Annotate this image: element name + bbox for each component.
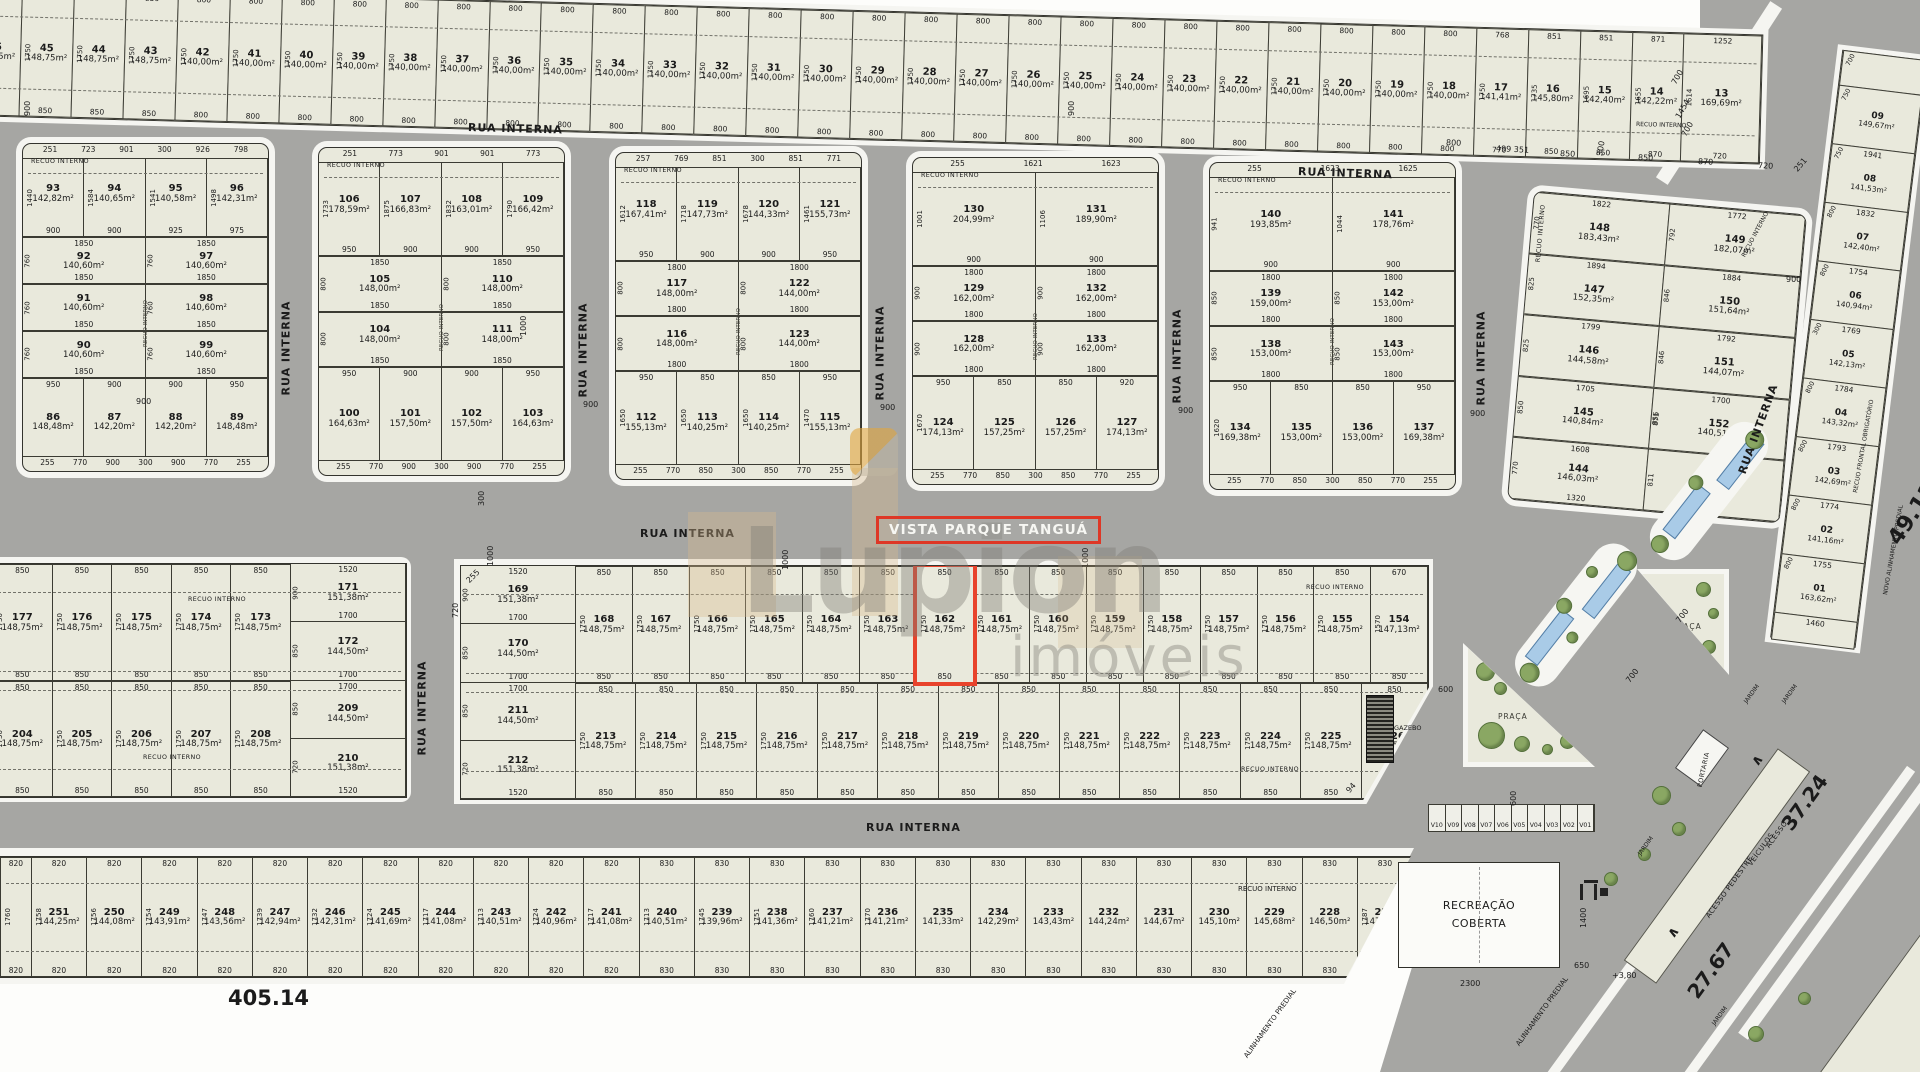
parking-stall-V05[interactable]: V05 [1512,805,1529,831]
lot-109[interactable]: 109166,42m²9501790 [502,162,564,256]
lot-area: 141,21m² [812,918,853,927]
lot-20[interactable]: 80020140,00m²8001750 [1317,24,1373,153]
dim-label: 720 [452,603,460,618]
lot-number: 95 [169,183,183,195]
dim-label: 1400 [1580,908,1588,928]
lot-229[interactable]: 830229145,68m²830 [1246,857,1302,977]
lot-side-dim: 760 [24,348,32,361]
lot-129[interactable]: 1800129162,00m²1800900 [912,266,1036,321]
lot-side-dim: 1461 [803,205,811,223]
dimension-row: 255770850300850770255 [913,470,1158,484]
lot-127[interactable]: 920127174,13m² [1096,376,1158,470]
lot-166[interactable]: 850166148,75m²8501750 [689,566,747,683]
lot-141[interactable]: 141178,76m²9001044 [1332,177,1456,271]
lot-number: 157 [1218,614,1239,626]
lot-area: 155,13m² [625,424,666,433]
lot-212[interactable]: 212151,38m²1520720 [460,740,576,799]
lot-120[interactable]: 120144,33m²9001678 [738,167,800,261]
lot-side-dim: 1750 [1218,76,1226,94]
lot-area: 148,75m² [754,626,795,635]
lot-top-dim: 800 [560,4,575,15]
lot-238[interactable]: 830238141,36m²8301751 [749,857,805,977]
lot-122[interactable]: 1800122144,00m²1800800 [738,261,862,316]
lot-217[interactable]: 850217148,75m²8501750 [817,683,878,800]
lot-area: 153,00m² [1342,434,1383,443]
lot-side-dim: 1670 [916,414,924,432]
lot-96[interactable]: 96142,31m²9751498 [206,158,268,237]
lot-90[interactable]: 90140,60m²1850760 [22,331,146,378]
lot-32[interactable]: 80032140,00m²8001750 [694,7,750,136]
lot-14[interactable]: 87114142,22m²8701655 [1628,32,1684,161]
lot-label: 137169,38m² [1403,393,1444,472]
lot-area: 148,75m² [887,742,928,751]
lot-230[interactable]: 830230145,10m²830 [1191,857,1247,977]
lot-side-dim: 850 [1333,292,1341,305]
lot-area: 145,68m² [1254,918,1295,927]
lot-bottom-dim: 800 [401,115,416,126]
lot-bottom-dim: 1800 [1087,309,1106,320]
lot-128[interactable]: 128162,00m²1800900 [912,321,1036,376]
recuo-interno-label: RECUO INTERNO [624,167,682,174]
lot-248[interactable]: 820248143,56m²8201747 [197,857,253,977]
lot-area: 148,75m² [1094,626,1135,635]
lot-area: 140,25m² [748,424,789,433]
lot-23[interactable]: 80023140,00m²8001750 [1161,19,1217,148]
lot-105[interactable]: 1850105148,00m²1850800 [318,256,442,311]
lot-123[interactable]: 123144,00m²1800800 [738,316,862,371]
lot-bottom-dim: 1800 [667,359,686,370]
lot-205[interactable]: 850205148,75m²8501750 [52,681,113,798]
lot-bottom-dim: 1800 [1384,369,1403,380]
lot-246[interactable]: 820246142,31m²8201732 [307,857,363,977]
lot-118[interactable]: 118167,41m²9501612 [615,167,677,261]
lot-bottom-dim: 850 [824,671,838,682]
lot-124[interactable]: 950124174,13m²1670 [912,376,974,470]
lot-139[interactable]: 1800139159,00m²1800850 [1209,271,1333,326]
lot-bottom-dim: 830 [936,965,950,976]
parking-stall-V09[interactable]: V09 [1446,805,1463,831]
lot-top-dim: 850 [134,682,148,693]
lot-34[interactable]: 80034140,00m²8001750 [590,4,646,133]
lot-245[interactable]: 820245141,69m²8201724 [362,857,418,977]
lot-side-dim: 1750 [1166,74,1174,92]
lot-213[interactable]: 850213148,75m²8501750 [575,683,636,800]
lot-102[interactable]: 900102157,50m² [441,367,503,461]
lot-223[interactable]: 850223148,75m²8501750 [1179,683,1240,800]
lot-138[interactable]: 138153,00m²1800850 [1209,326,1333,381]
lot-243[interactable]: 820243140,51m²8201713 [473,857,529,977]
lot-215[interactable]: 850215148,75m²8501750 [696,683,757,800]
lot-38[interactable]: 80038140,00m²8001750 [382,0,438,128]
lot-142[interactable]: 1800142153,00m²1800850 [1332,271,1456,326]
lot-label: 124174,13m² [922,388,963,467]
lot-top-dim: 820 [439,858,453,869]
lot-231[interactable]: 830231144,67m²830 [1136,857,1192,977]
lot-19[interactable]: 80019140,00m²8001750 [1369,25,1425,154]
lot-top-dim: 830 [936,858,950,869]
lot-126[interactable]: 850126157,25m² [1035,376,1097,470]
lot-113[interactable]: 850113140,25m²1650 [676,371,738,465]
lot-136[interactable]: 850136153,00m² [1332,381,1394,475]
dim-label: 900 [106,458,120,470]
lot-251[interactable]: 820251144,25m²8201758 [31,857,87,977]
lot-top-dim: 850 [134,565,148,576]
lot-area: 148,75m² [766,742,807,751]
lot-143[interactable]: 143153,00m²1800850 [1332,326,1456,381]
lot-112[interactable]: 950112155,13m²1650 [615,371,677,465]
lot-208[interactable]: 850208148,75m²8501750 [230,681,291,798]
lot-area: 144,07m² [1702,367,1744,379]
lot-number: 117 [666,278,687,290]
lot-140[interactable]: 140193,85m²900941 [1209,177,1333,271]
parking-stall-V04[interactable]: V04 [1528,805,1545,831]
tree-icon [1494,682,1507,695]
lot-36[interactable]: 80036140,00m²8001750 [486,1,542,130]
lot-area: 140,00m² [857,76,899,86]
lot-157[interactable]: 850157148,75m²8501750 [1200,566,1258,683]
lot-132[interactable]: 1800132162,00m²1800900 [1035,266,1159,321]
street-name-label: RUA INTERNA [1298,166,1393,180]
lot-173[interactable]: 850173148,75m²8501750 [230,564,291,681]
lot-label [1881,58,1885,90]
lot-bottom-dim: 820 [107,965,121,976]
lot-side-dim: 1584 [87,189,95,207]
lot-top-dim: 850 [1051,567,1065,578]
lot-222[interactable]: 850222148,75m²8501750 [1119,683,1180,800]
lot-97[interactable]: 185097140,60m²1850760 [145,237,269,284]
lot-31[interactable]: 80031140,00m²8001750 [746,8,802,137]
lot-area: 140,51m² [646,918,687,927]
mid-block-top-half: 850177148,75m²8501750850176148,75m²85017… [0,564,406,681]
lot-bottom-dim: 850 [1022,787,1036,798]
dim-label: 850 [1560,150,1576,159]
lot-bottom-dim: 800 [1232,137,1247,148]
block-top-row: 93142,82m²900144094140,65m²900158495140,… [23,158,268,237]
lot-label: 222148,75m² [1129,695,1170,788]
lot-88[interactable]: 90088142,20m² [145,378,207,457]
lot-237[interactable]: 830237141,21m²8301760 [804,857,860,977]
lot-131[interactable]: 131189,90m²9001106 [1035,172,1159,266]
parking-stall-V06[interactable]: V06 [1495,805,1512,831]
lot-163[interactable]: 850163148,75m²8501750 [859,566,917,683]
lot-area: 144,33m² [748,211,789,220]
parking-stall-V07[interactable]: V07 [1479,805,1496,831]
lot-number: 103 [522,408,543,420]
lot-92[interactable]: 185092140,60m²1850760 [22,237,146,284]
lot-206[interactable]: 850206148,75m²8501750 [111,681,172,798]
dim-label: 255 [40,458,54,470]
lot-108[interactable]: 108163,01m²9001832 [441,162,503,256]
parking-stall-V08[interactable]: V08 [1462,805,1479,831]
lot-18[interactable]: 80018140,00m²8001750 [1421,26,1477,155]
tree-icon [1604,872,1618,886]
lot-44[interactable]: 85044148,75m²8501750 [70,0,126,119]
lot-107[interactable]: 107166,83m²9001875 [379,162,441,256]
lot-top-dim: 800 [612,5,627,16]
lot-number: 168 [593,614,614,626]
lot-106[interactable]: 106178,59m²9501733 [318,162,380,256]
lot-17[interactable]: 76817141,41m²7701750 [1473,28,1529,157]
lot-159[interactable]: 850159148,75m²8501750 [1086,566,1144,683]
lot-174[interactable]: 850174148,75m²8501750 [171,564,232,681]
lot-area: 142,82m² [32,195,73,204]
lot-28[interactable]: 80028140,00m²8001750 [901,12,957,141]
lot-177[interactable]: 850177148,75m²8501750 [0,564,53,681]
lot-bottom-dim: 830 [715,965,729,976]
lot-26[interactable]: 80026140,00m²8001750 [1005,15,1061,144]
lot-number: 119 [697,199,718,211]
lot-160[interactable]: 850160148,75m²8501750 [1029,566,1087,683]
lot-119[interactable]: 119147,73m²9001718 [676,167,738,261]
lot-115[interactable]: 950115155,13m²1470 [799,371,861,465]
lot-87[interactable]: 90087142,20m² [83,378,145,457]
lot-236[interactable]: 830236141,21m²8301770 [860,857,916,977]
lot-133[interactable]: 133162,00m²1800900 [1035,321,1159,376]
lot-west-dim: 800 [1782,556,1795,571]
lot-label: 206148,75m² [121,693,162,786]
lot-area: 204,99m² [953,216,994,225]
lot-240[interactable]: 830240140,51m²8301713 [639,857,695,977]
lot-side-dim: 1750 [1011,70,1019,88]
lot-33[interactable]: 80033140,00m²8001750 [642,5,698,134]
lot-area: 153,00m² [1373,300,1414,309]
lot-134[interactable]: 950134169,38m²1620 [1209,381,1271,475]
lot-130[interactable]: 130204,99m²9001001 [912,172,1036,266]
lot-side-dim: 1612 [619,205,627,223]
lot-176[interactable]: 850176148,75m²8501750 [52,564,113,681]
lot-94[interactable]: 94140,65m²9001584 [83,158,145,237]
tree-icon [1696,582,1711,597]
lot-top-dim: 820 [328,858,342,869]
lot-242[interactable]: 820242140,96m²8201724 [528,857,584,977]
lot-101[interactable]: 900101157,50m² [379,367,441,461]
lot-area: 140,84m² [1561,416,1603,428]
lot-label: 145140,84m² [1560,392,1605,442]
lot-137[interactable]: 950137169,38m² [1393,381,1455,475]
lot-bottom-dim: 850 [1165,671,1179,682]
dim-label: 1623 [1101,159,1120,171]
lot-89[interactable]: 95089148,48m² [206,378,268,457]
lot-170[interactable]: 170144,50m²1700850 [460,623,576,682]
lot-235[interactable]: 830235141,33m²830 [915,857,971,977]
lot-135[interactable]: 850135153,00m² [1270,381,1332,475]
lot-168[interactable]: 850168148,75m²8501750 [575,566,633,683]
lot-label: 211144,50m² [497,694,538,738]
lot-number: 129 [963,283,984,295]
lot-158[interactable]: 850158148,75m²8501750 [1143,566,1201,683]
lot-top-dim: 800 [872,12,887,23]
lot-250[interactable]: 820250144,08m²8201756 [86,857,142,977]
lot-164[interactable]: 850164148,75m²8501750 [802,566,860,683]
lot-207[interactable]: 850207148,75m²8501750 [171,681,232,798]
lot-233[interactable]: 830233143,43m²830 [1025,857,1081,977]
lot-label: 169151,38m² [497,577,538,612]
lot-bottom-dim: 1850 [74,319,93,330]
lot-161[interactable]: 850161148,75m²8501750 [973,566,1031,683]
lot-30[interactable]: 80030140,00m²8001750 [797,9,853,138]
lot-219[interactable]: 850219148,75m²8501750 [938,683,999,800]
lot-side-dim: 1750 [976,615,984,633]
lot-22[interactable]: 80022140,00m²8001750 [1213,21,1269,150]
lot-bottom-dim: 1700 [508,612,527,623]
lot-241[interactable]: 820241141,08m²8201717 [583,857,639,977]
lot-40[interactable]: 80040140,00m²8001750 [278,0,334,125]
lot-214[interactable]: 850214148,75m²8501750 [635,683,696,800]
lot-west-dim: 800 [1804,380,1817,395]
lot-label: 143153,00m² [1373,329,1414,369]
lot-228[interactable]: 830228146,50m²830 [1302,857,1358,977]
lot-bottom-dim: 720 [1712,150,1727,161]
lot-side-dim: 850 [462,704,470,717]
lot-side-dim: 1750 [881,732,889,750]
lot-125[interactable]: 850125157,25m² [973,376,1035,470]
lot-top-dim: 850 [1387,684,1401,695]
dim-label: 770 [369,462,383,474]
lot-top-dim: 871 [1651,33,1666,44]
lot-249[interactable]: 820249143,91m²8201754 [141,857,197,977]
lot-label: 05142,13m² [1827,334,1869,385]
dimension-row: 255770900300900770255 [23,457,268,471]
lot-218[interactable]: 850218148,75m²8501750 [877,683,938,800]
parking-stall-V02[interactable]: V02 [1561,805,1578,831]
lot-label: 214148,75m² [645,695,686,788]
lot-121[interactable]: 121155,73m²9501461 [799,167,861,261]
lot-27[interactable]: 80027140,00m²8001750 [953,14,1009,143]
lot-area: 189,90m² [1076,216,1117,225]
dimension-row: 255770900300900770255 [319,461,564,475]
lot-234[interactable]: 830234142,29m²830 [970,857,1026,977]
lot-100[interactable]: 950100164,63m² [318,367,380,461]
lot-side-dim: 1750 [1260,615,1268,633]
lot-104[interactable]: 104148,00m²1850800 [318,312,442,367]
lot-side-dim: 1747 [200,908,208,926]
dim-label: 300 [1028,471,1042,483]
lot-221[interactable]: 850221148,75m²8501750 [1059,683,1120,800]
lot-bottom-dim: 1800 [964,309,983,320]
lot-side-dim: 800 [739,282,747,295]
lot-16[interactable]: 85116145,80m²8501735 [1525,29,1581,158]
lot-171[interactable]: 1520171151,38m²1700900 [290,563,406,622]
lot-247[interactable]: 820247142,94m²8201739 [252,857,308,977]
lot-98[interactable]: 98140,60m²1850760 [145,284,269,331]
lot-24[interactable]: 80024140,00m²8001750 [1109,18,1165,147]
lot-number: 174 [191,612,212,624]
dim-label: 901 [434,149,448,161]
lot-41[interactable]: 80041140,00m²8001750 [226,0,282,123]
lot-area: 140,00m² [701,72,743,82]
lot-label: 241141,08m² [591,869,632,965]
lot-42[interactable]: 80042140,00m²8001750 [174,0,230,122]
lot-116[interactable]: 116148,00m²1800800 [615,316,739,371]
lot-114[interactable]: 850114140,25m²1650 [738,371,800,465]
lot-label: 238141,36m² [756,869,797,965]
lot-117[interactable]: 1800117148,00m²1800800 [615,261,739,316]
lot-165[interactable]: 850165148,75m²8501750 [745,566,803,683]
lot-209[interactable]: 1700209144,50m²850 [290,680,406,739]
lot-label: 232144,24m² [1088,869,1129,965]
parking-stall-V10[interactable]: V10 [1429,805,1446,831]
lot-bottom-dim: 1850 [74,272,93,283]
lot-172[interactable]: 172144,50m²1700850 [290,621,406,680]
dim-label: 770 [73,458,87,470]
dim-label: 720 [1758,162,1774,171]
lot-210[interactable]: 210151,38m²1520720 [290,738,406,797]
lot-label: 170144,50m² [497,626,538,670]
lot-25[interactable]: 80025140,00m²8001750 [1057,17,1113,146]
lot-bottom-dim: 850 [254,669,268,680]
lot-label: 121155,73m² [809,170,850,249]
lot-111[interactable]: 111148,00m²1850800 [441,312,565,367]
lot-167[interactable]: 850167148,75m²8501750 [632,566,690,683]
dim-label: 900 [1786,276,1801,284]
lot-29[interactable]: 80029140,00m²8001750 [849,11,905,140]
lot-label: 132162,00m² [1076,278,1117,309]
lot-211[interactable]: 1700211144,50m²850 [460,682,576,741]
lot-bottom-dim: 800 [661,122,676,133]
lot-area: 148,75m² [1189,742,1230,751]
lot-partial[interactable]: 8208201760 [0,857,32,977]
lot-144[interactable]: 1608144146,03m²1320770 [1507,437,1649,510]
parking-stall-V01[interactable]: V01 [1578,805,1595,831]
lot-37[interactable]: 80037140,00m²8001750 [434,0,490,129]
lot-13[interactable]: 125213169,69m²7201614 [1680,33,1762,163]
lot-label: 151144,07m² [1701,342,1746,392]
lot-area: 157,50m² [390,420,431,429]
lot-220[interactable]: 850220148,75m²8501750 [998,683,1059,800]
lot-39[interactable]: 80039140,00m²8001750 [330,0,386,126]
lot-bottom-dim: 820 [218,965,232,976]
lot-224[interactable]: 850224148,75m²8501750 [1240,683,1301,800]
dim-label: 900 [1470,410,1485,418]
lot-93[interactable]: 93142,82m²9001440 [22,158,84,237]
lot-244[interactable]: 820244141,08m²8201717 [418,857,474,977]
recuo-interno-label: RECUO INTERNO [1306,584,1364,591]
lot-area: 142,20m² [94,423,135,432]
tree-icon [1798,992,1811,1005]
lot-43[interactable]: 85043148,75m²8501750 [122,0,178,121]
block-quadra-1: 25172390130092679893142,82m²900144094140… [22,143,269,472]
lot-side-dim: 941 [1211,217,1219,230]
lot-154[interactable]: 670154147,13m²8501570 [1370,566,1428,683]
lot-bottom-dim: 950 [639,249,653,260]
lot-91[interactable]: 91140,60m²1850760 [22,284,146,331]
block-top-row: 118167,41m²9501612119147,73m²90017181201… [616,167,861,261]
lot-95[interactable]: 95140,58m²9251541 [145,158,207,237]
lot-103[interactable]: 950103164,63m² [502,367,564,461]
parking-stall-V03[interactable]: V03 [1545,805,1562,831]
lot-35[interactable]: 80035140,00m²8001750 [538,2,594,131]
lot-side-dim: 1541 [148,189,156,207]
lot-239[interactable]: 830239139,96m²8301745 [694,857,750,977]
lot-label: 146144,58m² [1566,330,1611,380]
lot-86[interactable]: 95086148,48m² [22,378,84,457]
lot-110[interactable]: 1850110148,00m²1850800 [441,256,565,311]
lot-175[interactable]: 850175148,75m²8501750 [111,564,172,681]
lot-232[interactable]: 830232144,24m²830 [1081,857,1137,977]
dim-label: 770 [1260,476,1274,488]
lot-side-dim: 850 [292,702,300,715]
lot-204[interactable]: 850204148,75m²8501750 [0,681,53,798]
lot-99[interactable]: 99140,60m²1850760 [145,331,269,378]
lot-216[interactable]: 850216148,75m²8501750 [756,683,817,800]
lot-21[interactable]: 80021140,00m²8001750 [1265,22,1321,151]
lot-label: 243140,51m² [480,869,521,965]
lot-top-dim: 850 [881,567,895,578]
lot-162[interactable]: 850162148,75m²8501750 [916,566,974,683]
lot-top-dim: 820 [494,858,508,869]
lot-top-dim: 850 [599,684,613,695]
lot-top-dim: 800 [508,3,523,14]
